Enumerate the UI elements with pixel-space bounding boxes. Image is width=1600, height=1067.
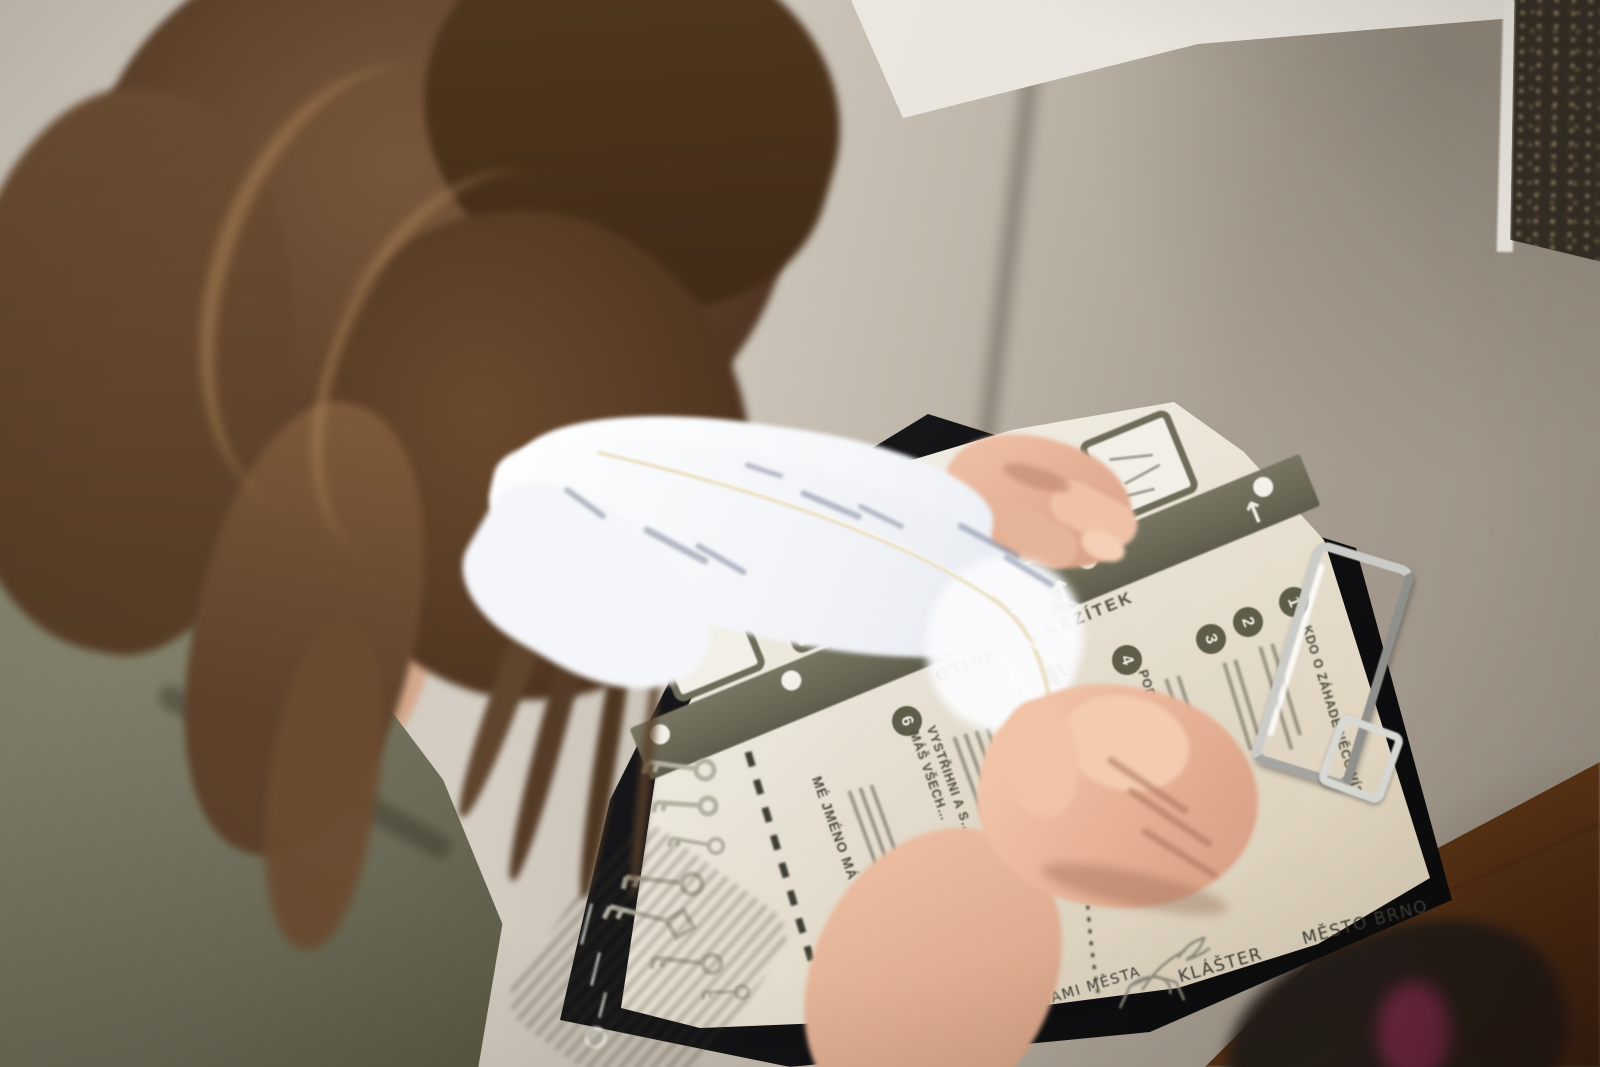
photo-scene: ↑ ↑ OTISKNI 6 RAZÍTEK 1 2 3 4 6 KDO O ZÁ… [0,0,1600,1067]
feather-shaft [0,0,1600,1067]
